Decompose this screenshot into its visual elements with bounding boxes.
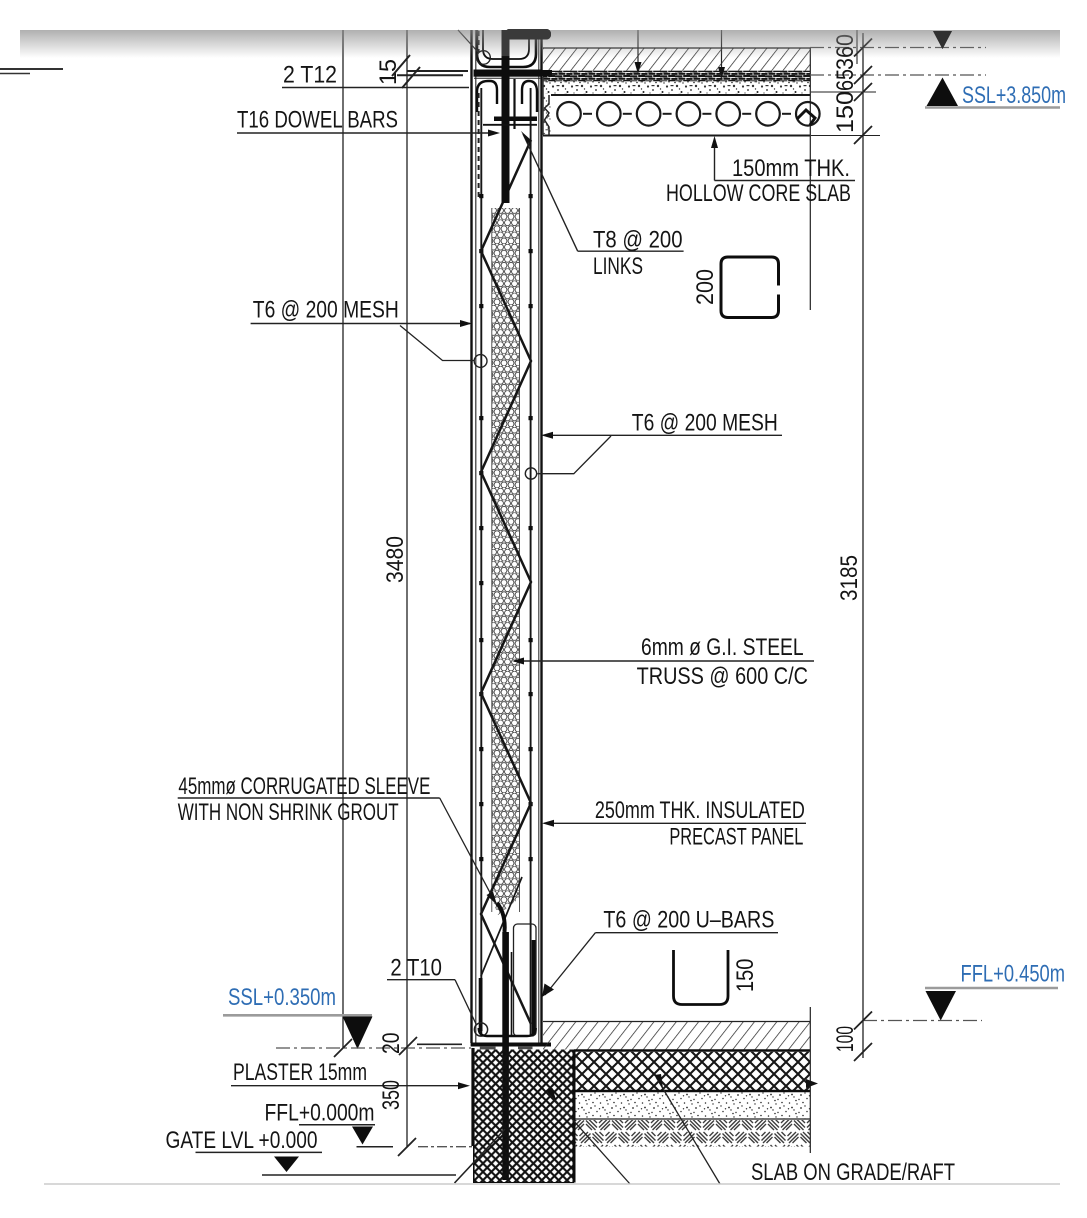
svg-text:2 T12: 2 T12	[283, 62, 337, 89]
svg-text:100: 100	[832, 1026, 859, 1052]
svg-text:T8 @ 200: T8 @ 200	[593, 227, 683, 254]
svg-text:6mm ø G.I. STEEL: 6mm ø G.I. STEEL	[641, 634, 804, 661]
svg-text:SSL+0.350m: SSL+0.350m	[228, 984, 336, 1011]
svg-text:20: 20	[378, 1033, 405, 1055]
svg-text:150mm THK.: 150mm THK.	[732, 155, 850, 182]
svg-text:HOLLOW CORE SLAB: HOLLOW CORE SLAB	[666, 180, 851, 207]
svg-text:65: 65	[832, 69, 859, 91]
svg-text:3480: 3480	[382, 536, 409, 583]
svg-text:3185: 3185	[836, 555, 863, 601]
svg-text:T6 @ 200 U–BARS: T6 @ 200 U–BARS	[603, 907, 774, 934]
svg-text:T16 DOWEL BARS: T16 DOWEL BARS	[237, 107, 398, 134]
svg-text:250mm THK. INSULATED: 250mm THK. INSULATED	[595, 797, 805, 824]
svg-text:45mmø CORRUGATED SLEEVE: 45mmø CORRUGATED SLEEVE	[178, 773, 430, 800]
svg-text:T6 @ 200 MESH: T6 @ 200 MESH	[632, 410, 778, 437]
svg-text:SSL+3.850m: SSL+3.850m	[962, 82, 1066, 109]
svg-text:FFL+0.450m: FFL+0.450m	[961, 961, 1066, 988]
svg-text:PRECAST PANEL: PRECAST PANEL	[669, 824, 803, 851]
svg-text:WITH NON SHRINK GROUT: WITH NON SHRINK GROUT	[178, 799, 399, 826]
svg-text:150: 150	[732, 959, 759, 992]
svg-text:LINKS: LINKS	[593, 253, 643, 280]
svg-text:TRUSS @ 600 C/C: TRUSS @ 600 C/C	[637, 663, 808, 690]
svg-text:200: 200	[692, 269, 719, 305]
svg-text:150: 150	[832, 91, 859, 133]
svg-text:15: 15	[375, 59, 402, 85]
svg-text:GATE LVL +0.000: GATE LVL +0.000	[166, 1127, 318, 1154]
svg-text:FFL+0.000m: FFL+0.000m	[265, 1100, 375, 1127]
svg-text:SLAB ON GRADE/RAFT: SLAB ON GRADE/RAFT	[751, 1159, 955, 1186]
svg-text:PLASTER 15mm: PLASTER 15mm	[233, 1059, 367, 1086]
svg-text:2 T10: 2 T10	[390, 955, 442, 982]
svg-text:T6 @ 200 MESH: T6 @ 200 MESH	[253, 297, 399, 324]
svg-text:350: 350	[378, 1080, 405, 1110]
